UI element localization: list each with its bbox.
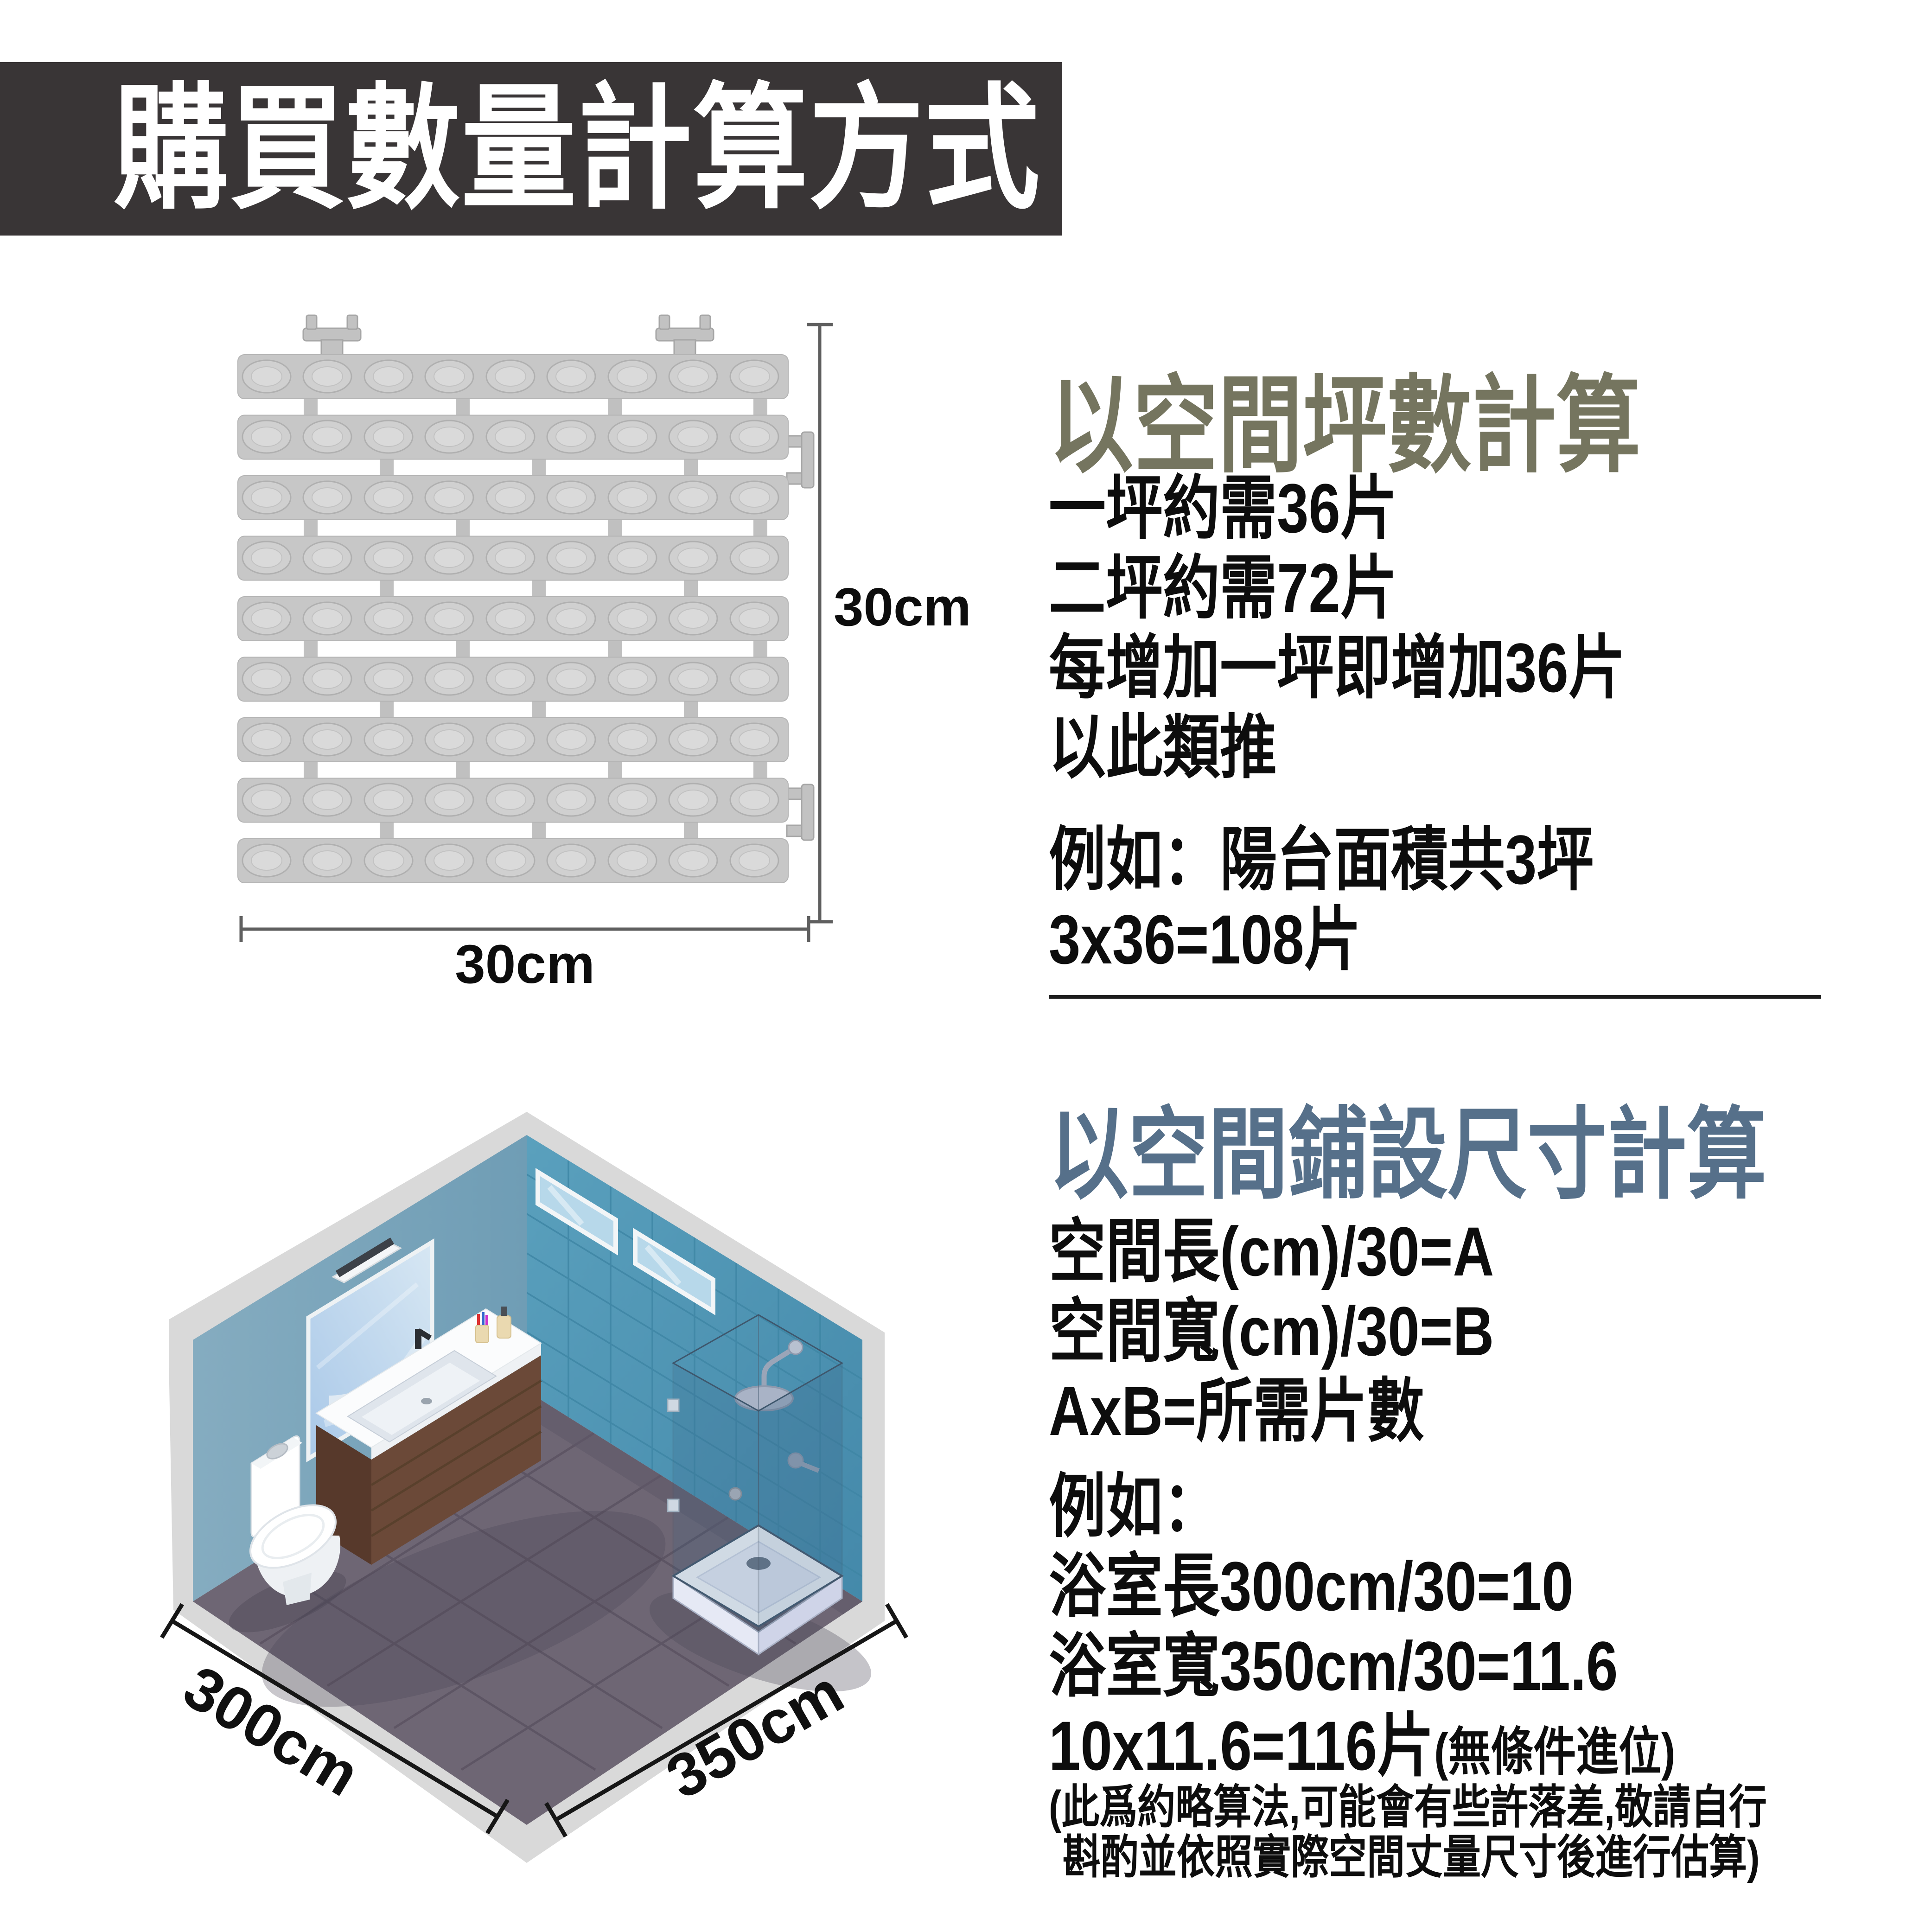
ping-example-2: 3x36=108片 bbox=[1049, 883, 1430, 984]
tile-graphic bbox=[234, 297, 818, 918]
tile-slats bbox=[238, 355, 788, 883]
bathroom-illustration: 300cm 350cm bbox=[130, 1090, 918, 1901]
page-title: 購買數量計算方式 bbox=[114, 62, 1204, 236]
size-line-3: AxB=所需片數 bbox=[1049, 1355, 1507, 1455]
disclaimer-line-2: 斟酌並依照實際空間丈量尺寸後進行估算) bbox=[1063, 1819, 1913, 1887]
infographic-page: 購買數量計算方式 bbox=[0, 0, 1932, 1932]
tile-top-tab bbox=[303, 315, 714, 356]
title-banner: 購買數量計算方式 bbox=[0, 62, 1062, 236]
tile-height-label: 30cm bbox=[834, 576, 971, 638]
bathroom-svg bbox=[130, 1090, 918, 1901]
section-divider bbox=[1049, 995, 1821, 999]
ping-line-4: 以此類推 bbox=[1049, 691, 1327, 792]
tile-width-label: 30cm bbox=[237, 933, 812, 996]
